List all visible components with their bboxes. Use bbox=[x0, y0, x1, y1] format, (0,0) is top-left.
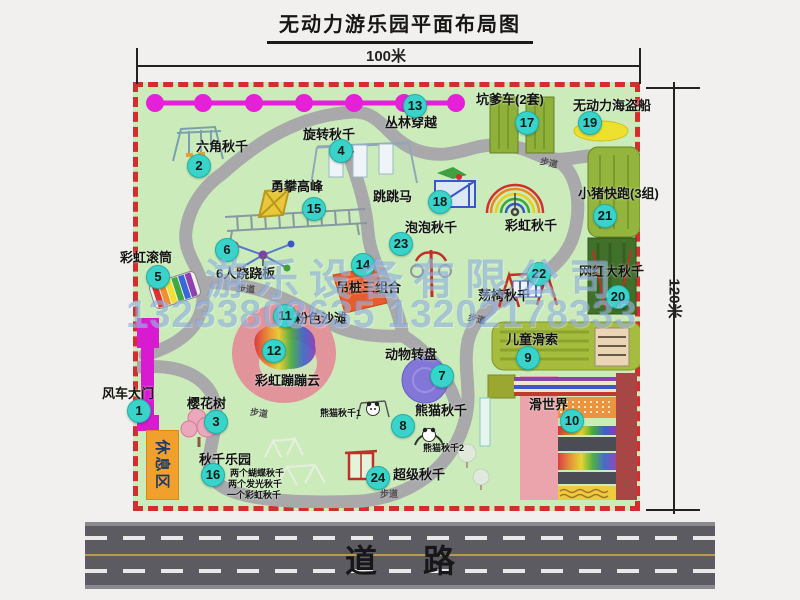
poi-label-cherry-tree: 樱花树 bbox=[187, 393, 226, 412]
poi-label-panda-swing-2: 熊猫秋千2 bbox=[423, 441, 464, 454]
road-label: 道路 bbox=[85, 536, 715, 582]
poi-label-panda-swing: 熊猫秋千 bbox=[415, 400, 467, 419]
poi-badge-13: 13 bbox=[403, 94, 427, 118]
poi-label-rainbow-roller: 彩虹滚筒 bbox=[120, 247, 172, 266]
poi-label-kengdie-car: 坑爹车(2套) bbox=[476, 89, 544, 108]
path-label-4: 步道 bbox=[249, 405, 269, 420]
poi-label-windmill-gate: 风车大门 bbox=[102, 383, 154, 402]
poi-label-pink-beach: 粉色沙滩 bbox=[295, 308, 347, 327]
poi-badge-4: 4 bbox=[329, 139, 353, 163]
poi-badge-11: 11 bbox=[273, 304, 297, 328]
poi-badge-5: 5 bbox=[146, 265, 170, 289]
poi-label-kids-zipline: 儿童滑索 bbox=[506, 329, 558, 348]
dim-height-label: 120米 bbox=[665, 278, 686, 318]
climbing-peak-icon bbox=[225, 189, 367, 243]
poi-label-climbing-peak: 勇攀高峰 bbox=[271, 176, 323, 195]
poi-label-animal-carousel: 动物转盘 bbox=[385, 344, 437, 363]
poi-label-jumping-horse: 跳跳马 bbox=[373, 186, 412, 205]
poi-label-rainbow-bounce-cloud: 彩虹蹦蹦云 bbox=[255, 370, 320, 389]
poi-label-super-swing: 超级秋千 bbox=[393, 464, 445, 483]
dim-tick-right-bottom bbox=[646, 509, 700, 511]
poi-badge-23: 23 bbox=[389, 232, 413, 256]
rest-area: 休息区 bbox=[146, 430, 179, 500]
page-title-text: 无动力游乐园平面布局图 bbox=[267, 8, 533, 44]
poi-badge-14: 14 bbox=[351, 253, 375, 277]
poi-badge-21: 21 bbox=[593, 204, 617, 228]
poi-label-panda-swing-1: 熊猫秋千1 bbox=[320, 406, 361, 419]
poi-label-big-swing: 网红大秋千 bbox=[579, 261, 644, 280]
poi-label-six-person-seesaw: 6人跷跷板 bbox=[216, 263, 275, 282]
road: 道路 bbox=[85, 522, 715, 589]
poi-badge-15: 15 bbox=[302, 197, 326, 221]
poi-badge-9: 9 bbox=[516, 346, 540, 370]
path-label-3: 步道 bbox=[237, 281, 256, 295]
poi-label-slide-world: 滑世界 bbox=[529, 394, 568, 413]
poi-label-bubble-swing: 泡泡秋千 bbox=[405, 217, 457, 236]
poi-badge-19: 19 bbox=[578, 111, 602, 135]
poi-badge-20: 20 bbox=[606, 285, 630, 309]
road-edge-top bbox=[85, 522, 715, 526]
poi-badge-7: 7 bbox=[430, 364, 454, 388]
poi-badge-10: 10 bbox=[560, 409, 584, 433]
poi-label-rainbow-swing: 彩虹秋千 bbox=[505, 215, 557, 234]
poi-badge-6: 6 bbox=[215, 238, 239, 262]
poi-badge-17: 17 bbox=[515, 111, 539, 135]
poi-badge-8: 8 bbox=[391, 414, 415, 438]
road-edge-bottom bbox=[85, 585, 715, 589]
poi-badge-24: 24 bbox=[366, 466, 390, 490]
poi-badge-12: 12 bbox=[262, 339, 286, 363]
poi-label-piggy-run: 小猪快跑(3组) bbox=[578, 183, 659, 202]
dim-tick-top-right bbox=[639, 48, 641, 84]
dim-tick-top-left bbox=[136, 48, 138, 84]
slide-world-icon bbox=[480, 373, 637, 500]
poi-badge-2: 2 bbox=[187, 154, 211, 178]
bubble-swing-icon bbox=[411, 250, 451, 297]
poi-label-hanging-pile-combo: 吊桩三组合 bbox=[336, 277, 401, 296]
poi-label-chair-swing: 荡椅秋千 bbox=[478, 285, 530, 304]
dim-tick-right-top bbox=[646, 87, 700, 89]
dim-width-label: 100米 bbox=[366, 45, 406, 66]
poi-badge-18: 18 bbox=[428, 190, 452, 214]
swing-park-note-3: 一个彩虹秋千 bbox=[227, 488, 281, 501]
poi-badge-16: 16 bbox=[201, 463, 225, 487]
rainbow-swing-icon bbox=[487, 185, 543, 215]
poi-badge-22: 22 bbox=[527, 262, 551, 286]
poi-badge-1: 1 bbox=[127, 399, 151, 423]
park-map-page: 无动力游乐园平面布局图 100米 120米 bbox=[0, 0, 800, 600]
poi-badge-3: 3 bbox=[204, 410, 228, 434]
poi-label-hexagon-swing: 六角秋千 bbox=[196, 136, 248, 155]
page-title: 无动力游乐园平面布局图 bbox=[0, 8, 800, 44]
rest-area-label: 休息区 bbox=[152, 439, 173, 490]
